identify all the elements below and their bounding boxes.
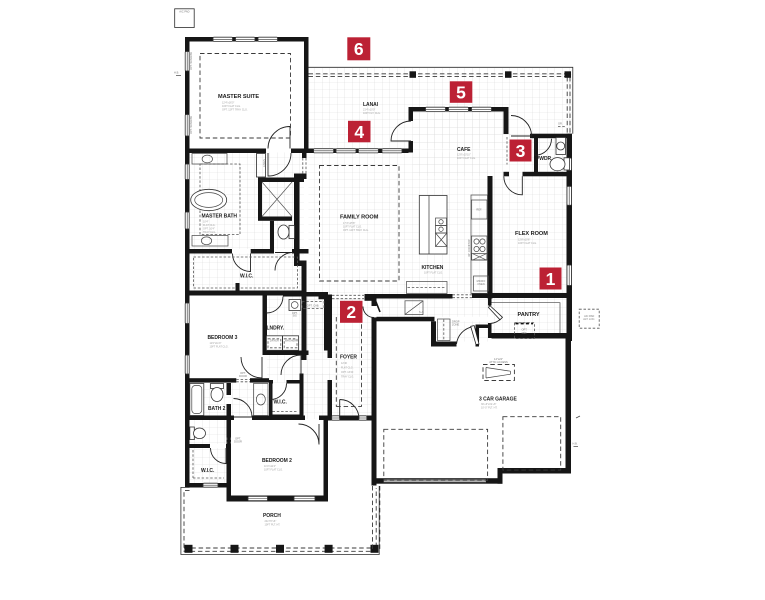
svg-text:TRAY CLG.: TRAY CLG. [203, 231, 216, 234]
svg-text:30" COOKTOP: 30" COOKTOP [467, 239, 471, 257]
svg-text:10FT FLAT CLG.: 10FT FLAT CLG. [424, 272, 443, 275]
svg-text:OPT. 13'4F: OPT. 13'4F [341, 371, 354, 374]
svg-text:LNDRY.: LNDRY. [267, 326, 285, 332]
svg-text:10FT FLAT CLG.: 10FT FLAT CLG. [210, 346, 229, 349]
svg-text:W.I.C.: W.I.C. [240, 274, 254, 280]
svg-text:1: 1 [546, 269, 556, 289]
svg-text:FAMILY ROOM: FAMILY ROOM [340, 215, 379, 221]
svg-text:DOOR: DOOR [239, 374, 247, 378]
svg-text:GR.: GR. [558, 122, 563, 126]
svg-text:ATTIC ACCESS: ATTIC ACCESS [489, 360, 508, 364]
svg-text:OVEN: OVEN [477, 282, 484, 286]
svg-text:10FT FLAT CLG.: 10FT FLAT CLG. [518, 242, 537, 245]
svg-text:10'-0" PLT. HT.: 10'-0" PLT. HT. [481, 407, 498, 410]
svg-text:ALT. LOC.: ALT. LOC. [583, 317, 595, 321]
svg-text:FLAT CLG.: FLAT CLG. [341, 367, 354, 370]
svg-text:5: 5 [456, 82, 466, 102]
svg-text:PORCH: PORCH [263, 513, 281, 519]
svg-text:H.B.: H.B. [573, 442, 578, 446]
svg-text:S.A.: S.A. [419, 310, 424, 314]
svg-text:10FT PLT. HT.: 10FT PLT. HT. [265, 524, 281, 527]
svg-text:FLEX ROOM: FLEX ROOM [515, 231, 548, 237]
svg-text:MASTER SUITE: MASTER SUITE [218, 94, 259, 100]
svg-text:DOOR: DOOR [234, 440, 242, 444]
svg-text:BATH 2: BATH 2 [208, 406, 226, 412]
svg-text:MASTER BATH: MASTER BATH [202, 214, 238, 220]
svg-text:12'4F: 12'4F [341, 362, 348, 365]
svg-text:10FT FLAT CLG.: 10FT FLAT CLG. [457, 157, 476, 160]
svg-text:H.B.: H.B. [174, 71, 179, 75]
svg-text:TRAY CLG.: TRAY CLG. [341, 376, 354, 379]
svg-text:KITCHEN: KITCHEN [422, 265, 444, 271]
svg-text:ZONE: ZONE [452, 323, 459, 327]
svg-text:6: 6 [354, 39, 364, 59]
svg-text:DRYER: DRYER [270, 339, 279, 343]
svg-text:S/S: S/S [293, 314, 297, 318]
svg-text:10FT FLT. CLG.: 10FT FLT. CLG. [363, 112, 381, 115]
svg-text:BEDROOM 3: BEDROOM 3 [208, 335, 238, 341]
svg-text:LANAI: LANAI [363, 102, 379, 108]
svg-text:FOYER: FOYER [340, 355, 357, 361]
svg-text:3: 3 [516, 141, 526, 161]
svg-text:REF.: REF. [522, 331, 528, 335]
svg-text:3 CAR GARAGE: 3 CAR GARAGE [479, 397, 517, 403]
svg-text:OPT. WINDOW: OPT. WINDOW [189, 116, 193, 134]
svg-text:OPT. 12FT TRAY CLG.: OPT. 12FT TRAY CLG. [343, 229, 369, 232]
svg-text:4: 4 [354, 122, 364, 142]
svg-text:OPT. CAB.: OPT. CAB. [307, 303, 320, 307]
svg-text:BEDROOM 2: BEDROOM 2 [262, 458, 292, 464]
svg-text:2: 2 [346, 302, 356, 322]
svg-text:W.I.C.: W.I.C. [274, 400, 288, 406]
svg-text:WASHER: WASHER [285, 339, 296, 343]
svg-text:A/C PAD: A/C PAD [179, 10, 189, 14]
svg-text:LINEN: LINEN [262, 159, 266, 167]
svg-text:10FT FLAT CLG.: 10FT FLAT CLG. [264, 469, 283, 472]
svg-text:REF.: REF. [476, 208, 482, 212]
svg-text:PWDR.: PWDR. [536, 156, 553, 162]
svg-text:OPT. 12FT TRAY CLG.: OPT. 12FT TRAY CLG. [222, 109, 248, 112]
svg-text:PANTRY: PANTRY [518, 312, 540, 318]
svg-text:W.I.C.: W.I.C. [201, 468, 215, 474]
svg-text:OPT. WINDOW: OPT. WINDOW [189, 52, 193, 70]
svg-text:CAFE: CAFE [457, 147, 471, 153]
